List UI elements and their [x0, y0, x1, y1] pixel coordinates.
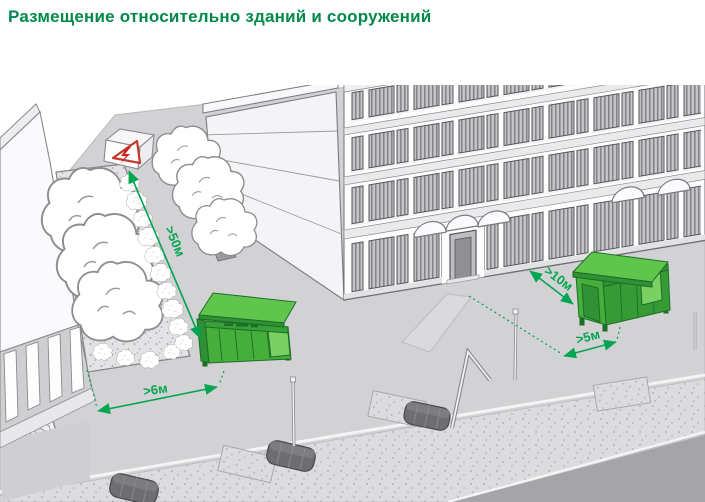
waste-container-1 [197, 293, 296, 366]
scene-illustration: >50м >6м >10м >5м [0, 0, 705, 502]
illustration-page: Размещение относительно зданий и сооруже… [0, 0, 705, 502]
entrance-door [455, 237, 471, 282]
